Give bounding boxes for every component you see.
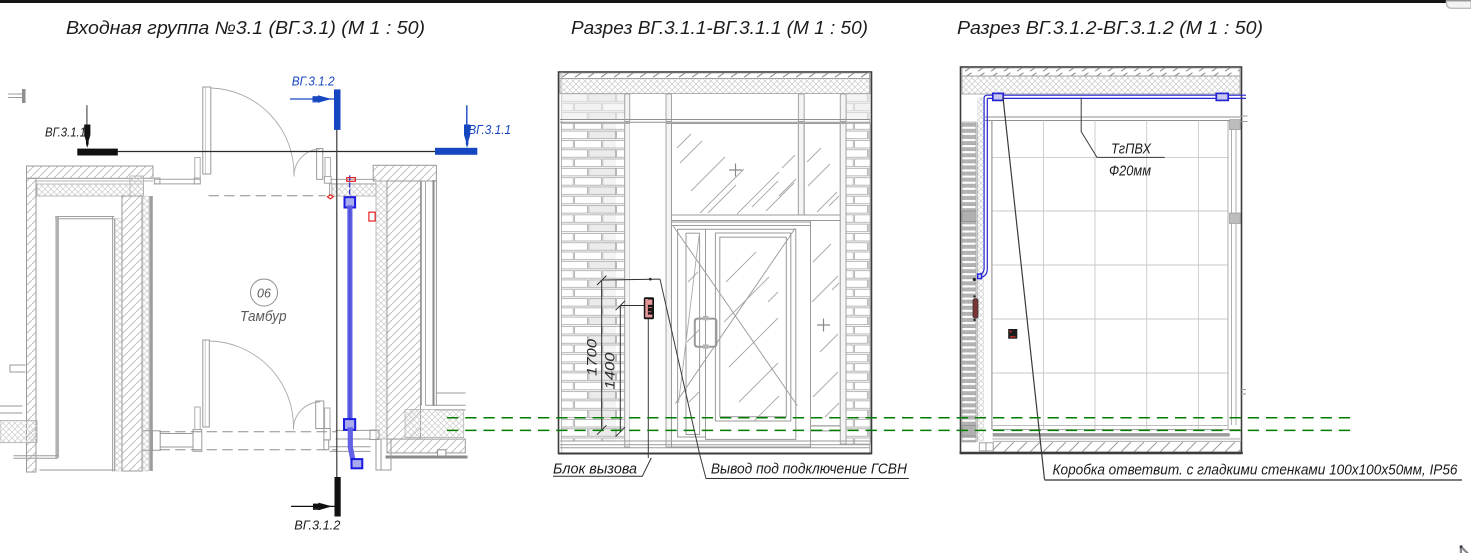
svg-text:Тамбур: Тамбур <box>240 309 287 325</box>
svg-text:Блок вызова: Блок вызова <box>553 462 637 478</box>
svg-text:ВГ.3.1.2: ВГ.3.1.2 <box>292 75 335 89</box>
svg-text:Ф20мм: Ф20мм <box>1109 164 1151 180</box>
svg-text:06: 06 <box>257 287 271 301</box>
svg-text:Разрез ВГ.3.1.2-ВГ.3.1.2 (М 1: Разрез ВГ.3.1.2-ВГ.3.1.2 (М 1 : 50) <box>957 18 1263 38</box>
svg-text:1400: 1400 <box>603 352 618 390</box>
svg-text:Входная группа №3.1 (ВГ.3.1) (: Входная группа №3.1 (ВГ.3.1) (М 1 : 50) <box>66 18 425 38</box>
svg-text:Коробка ответвит. с гладкими с: Коробка ответвит. с гладкими стенками 10… <box>1053 463 1459 479</box>
svg-text:ТгПВХ: ТгПВХ <box>1111 142 1152 158</box>
svg-text:ВГ.3.1.1: ВГ.3.1.1 <box>468 123 511 137</box>
svg-text:Разрез ВГ.3.1.1-ВГ.3.1.1 (М 1: Разрез ВГ.3.1.1-ВГ.3.1.1 (М 1 : 50) <box>571 18 868 38</box>
svg-text:Вывод под подключение ГСВН: Вывод под подключение ГСВН <box>711 462 907 478</box>
svg-text:1700: 1700 <box>585 338 600 376</box>
svg-text:ВГ.3.1.1: ВГ.3.1.1 <box>45 126 86 140</box>
svg-text:ВГ.3.1.2: ВГ.3.1.2 <box>294 519 340 533</box>
